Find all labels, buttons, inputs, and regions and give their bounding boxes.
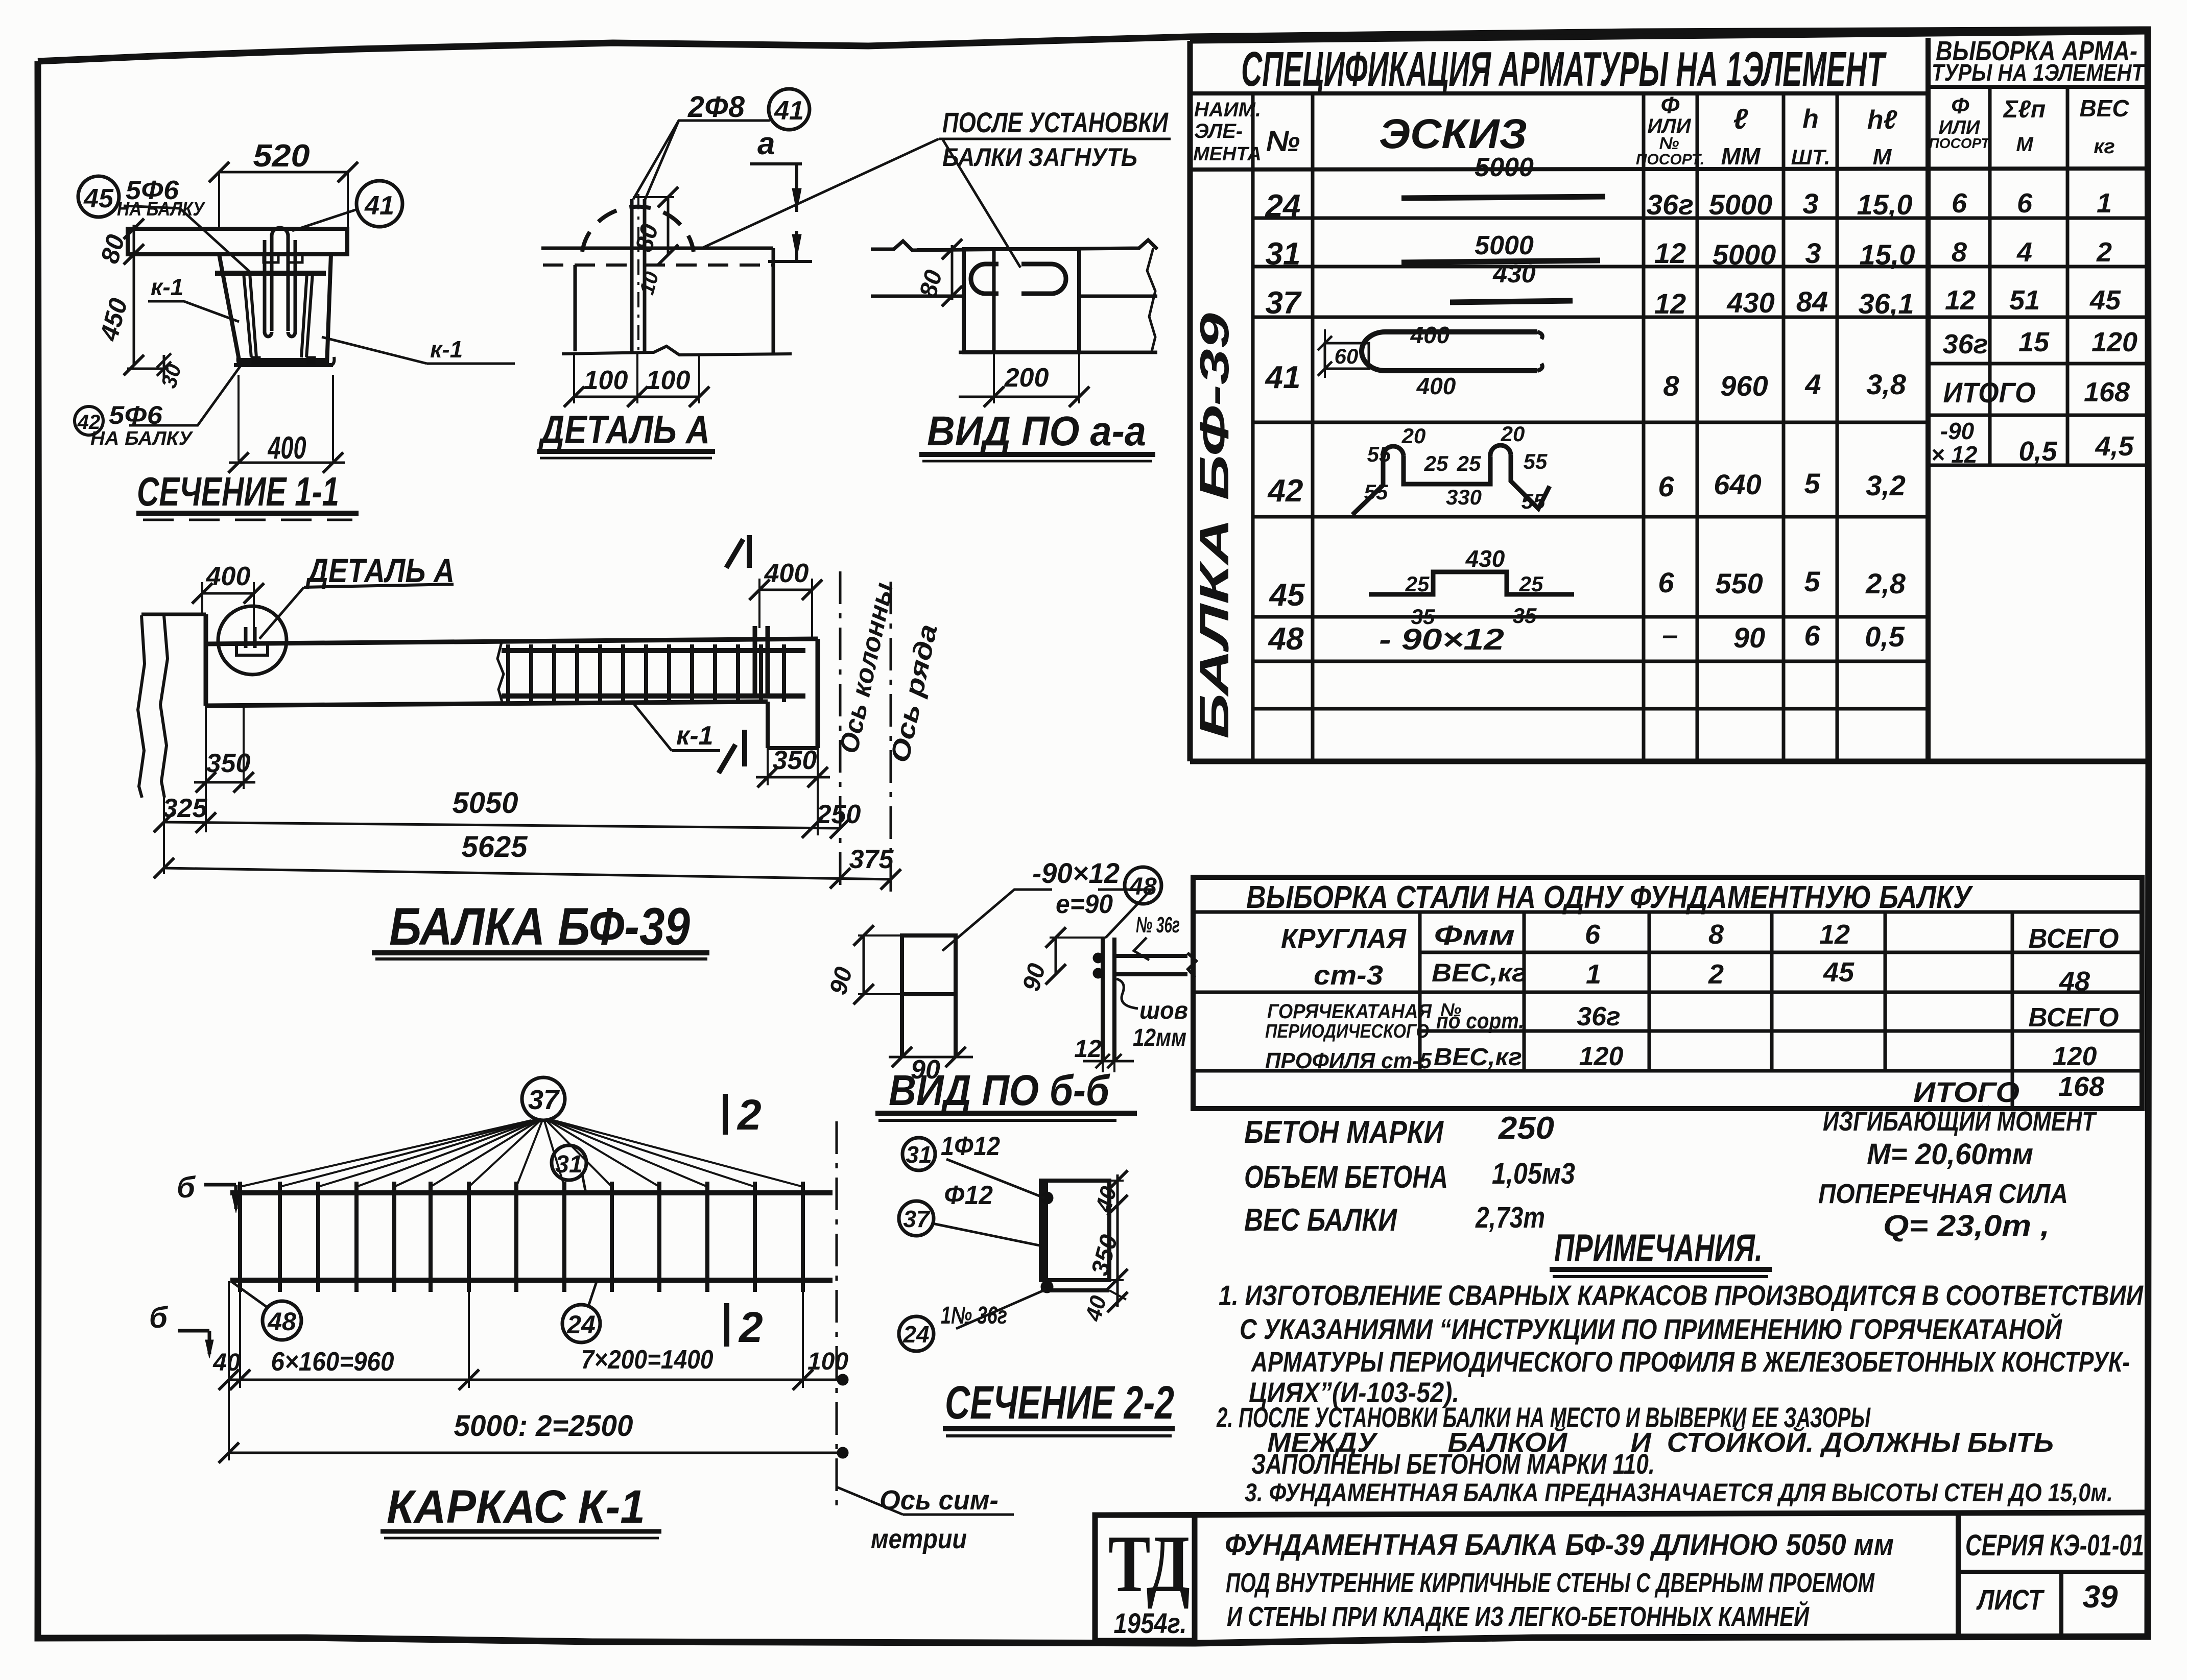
svg-text:ПЕРИОДИЧЕСКОГО: ПЕРИОДИЧЕСКОГО (1265, 1021, 1429, 1042)
svg-text:6: 6 (1658, 470, 1674, 502)
svg-text:45: 45 (1269, 578, 1305, 613)
svg-text:ℓ: ℓ (1733, 103, 1749, 135)
svg-text:к-1: к-1 (430, 336, 463, 363)
svg-text:ВСЕГО: ВСЕГО (2029, 923, 2119, 954)
svg-text:42: 42 (1267, 473, 1303, 509)
svg-text:36г: 36г (1577, 1002, 1621, 1031)
svg-text:Σℓп: Σℓп (2003, 96, 2046, 123)
svg-text:КРУГЛАЯ: КРУГЛАЯ (1281, 923, 1407, 954)
svg-text:ВИД ПО а-а: ВИД ПО а-а (927, 408, 1146, 454)
svg-text:б: б (177, 1171, 196, 1204)
svg-text:МЕНТА: МЕНТА (1193, 143, 1262, 165)
svg-text:- 90×12: - 90×12 (1379, 623, 1504, 656)
svg-text:ЗАПОЛНЕНЫ БЕТОНОМ МАРКИ 110.: ЗАПОЛНЕНЫ БЕТОНОМ МАРКИ 110. (1251, 1448, 1655, 1480)
svg-text:2: 2 (736, 1091, 762, 1139)
svg-text:168: 168 (2084, 377, 2130, 407)
svg-text:№ 36г: № 36г (1136, 913, 1180, 938)
svg-text:5050: 5050 (452, 786, 518, 820)
svg-text:12: 12 (1945, 285, 1976, 316)
svg-text:45: 45 (2089, 285, 2121, 316)
svg-text:55: 55 (1364, 480, 1388, 504)
svg-text:40: 40 (212, 1349, 241, 1376)
svg-text:кг: кг (2094, 135, 2115, 158)
svg-text:12: 12 (1654, 237, 1686, 269)
svg-text:1. ИЗГОТОВЛЕНИЕ СВАРНЫХ КАРКАС: 1. ИЗГОТОВЛЕНИЕ СВАРНЫХ КАРКАСОВ ПРОИЗВО… (1219, 1279, 2144, 1311)
svg-text:12: 12 (1819, 919, 1850, 950)
svg-text:Φ: Φ (1951, 93, 1969, 118)
svg-text:31: 31 (555, 1151, 582, 1178)
svg-text:ГОРЯЧЕКАТАНАЯ: ГОРЯЧЕКАТАНАЯ (1267, 1000, 1432, 1023)
svg-text:250: 250 (1498, 1111, 1554, 1146)
svg-text:2Φ8: 2Φ8 (687, 90, 745, 124)
svg-text:ИЗГИБАЮЩИЙ МОМЕНТ: ИЗГИБАЮЩИЙ МОМЕНТ (1823, 1105, 2097, 1137)
svg-text:3: 3 (1805, 237, 1821, 269)
svg-text:3,8: 3,8 (1866, 368, 1907, 400)
svg-text:430: 430 (1492, 259, 1536, 288)
svg-text:ВЕС,кг: ВЕС,кг (1432, 958, 1527, 987)
svg-text:48: 48 (267, 1307, 296, 1336)
svg-text:НА БАЛКУ: НА БАЛКУ (117, 199, 206, 220)
svg-text:37: 37 (903, 1206, 931, 1232)
svg-text:И СТЕНЫ ПРИ КЛАДКЕ ИЗ ЛЕГКО: И СТЕНЫ ПРИ КЛАДКЕ ИЗ ЛЕГКО-БЕТОННЫХ КАМ… (1227, 1600, 1810, 1632)
svg-text:0,5: 0,5 (1865, 620, 1905, 653)
svg-text:36г: 36г (1943, 329, 1988, 359)
svg-text:960: 960 (1720, 370, 1768, 402)
svg-text:е=90: е=90 (1056, 890, 1113, 919)
svg-text:6: 6 (1804, 619, 1820, 652)
svg-text:24: 24 (902, 1321, 929, 1348)
svg-text:ПОСОРТ.: ПОСОРТ. (1636, 151, 1704, 168)
svg-text:35: 35 (1513, 604, 1537, 628)
svg-text:7×200=1400: 7×200=1400 (581, 1345, 714, 1375)
svg-text:37: 37 (1266, 285, 1302, 321)
svg-text:ТД: ТД (1108, 1518, 1190, 1609)
svg-text:БАЛКА БФ-39: БАЛКА БФ-39 (389, 897, 690, 956)
svg-text:СЕРИЯ КЭ-01-01: СЕРИЯ КЭ-01-01 (1965, 1529, 2144, 1562)
svg-text:М: М (1873, 145, 1892, 170)
svg-text:6: 6 (1585, 919, 1601, 950)
svg-text:4: 4 (2016, 237, 2032, 268)
svg-text:ДЕТАЛЬ А: ДЕТАЛЬ А (538, 407, 710, 452)
svg-text:НА БАЛКУ: НА БАЛКУ (90, 428, 194, 449)
svg-text:5000: 5000 (1709, 188, 1773, 221)
svg-text:41: 41 (1265, 360, 1301, 395)
svg-text:37: 37 (528, 1085, 560, 1115)
svg-text:41: 41 (774, 96, 804, 126)
svg-text:36г: 36г (1647, 188, 1694, 221)
svg-text:шов: шов (1139, 997, 1188, 1024)
svg-text:120: 120 (2053, 1042, 2097, 1071)
svg-text:90: 90 (1733, 621, 1765, 654)
svg-text:№: № (1659, 134, 1679, 153)
svg-text:6×160=960: 6×160=960 (271, 1347, 394, 1377)
svg-text:120: 120 (2091, 327, 2137, 357)
svg-text:метрии: метрии (871, 1524, 967, 1554)
svg-text:2: 2 (738, 1303, 763, 1351)
svg-text:× 12: × 12 (1931, 441, 1978, 468)
svg-text:5000: 5000 (1475, 153, 1534, 182)
svg-text:АРМАТУРЫ ПЕРИОДИЧЕСКОГО ПРОФИ: АРМАТУРЫ ПЕРИОДИЧЕСКОГО ПРОФИЛЯ В ЖЕЛЕЗО… (1250, 1346, 2130, 1378)
svg-text:5000: 2=2500: 5000: 2=2500 (454, 1409, 633, 1443)
svg-text:5000: 5000 (1713, 238, 1776, 271)
svg-text:375: 375 (849, 845, 894, 874)
svg-text:120: 120 (1579, 1042, 1624, 1071)
svg-text:б: б (149, 1301, 169, 1334)
svg-text:ЭСКИЗ: ЭСКИЗ (1379, 111, 1527, 157)
svg-text:БЕТОН МАРКИ: БЕТОН МАРКИ (1244, 1115, 1444, 1150)
svg-text:ФУНДАМЕНТНАЯ БАЛКА БФ-39 ДЛИ: ФУНДАМЕНТНАЯ БАЛКА БФ-39 ДЛИНОЮ 5050 мм (1225, 1528, 1894, 1562)
svg-text:41: 41 (364, 191, 394, 221)
svg-text:КАРКАС К-1: КАРКАС К-1 (387, 1481, 645, 1533)
svg-text:БАЛКИ ЗАГНУТЬ: БАЛКИ ЗАГНУТЬ (942, 143, 1137, 172)
svg-text:4: 4 (1804, 368, 1821, 400)
svg-text:100: 100 (646, 366, 691, 395)
svg-text:325: 325 (163, 794, 208, 823)
svg-text:СПЕЦИФИКАЦИЯ АРМАТУРЫ НА 1ЭЛЕМ: СПЕЦИФИКАЦИЯ АРМАТУРЫ НА 1ЭЛЕМЕНТ (1241, 42, 1887, 97)
svg-text:М: М (2016, 133, 2034, 156)
svg-text:31: 31 (1266, 236, 1301, 272)
svg-text:ОБЪЕМ БЕТОНА: ОБЪЕМ БЕТОНА (1244, 1160, 1448, 1195)
svg-text:ММ: ММ (1721, 143, 1761, 170)
svg-text:100: 100 (807, 1348, 848, 1375)
svg-text:к-1: к-1 (151, 274, 183, 300)
svg-text:М= 20,60тм: М= 20,60тм (1867, 1138, 2033, 1171)
svg-text:8: 8 (1708, 919, 1724, 950)
svg-text:6: 6 (1952, 188, 1967, 219)
svg-text:4,5: 4,5 (2095, 431, 2134, 462)
svg-text:3. ФУНДАМЕНТНАЯ БАЛКА ПРЕДНА: 3. ФУНДАМЕНТНАЯ БАЛКА ПРЕДНАЗНАЧАЕТСЯ ДЛ… (1245, 1478, 2113, 1507)
svg-text:31: 31 (906, 1141, 932, 1168)
svg-text:1954г.: 1954г. (1114, 1607, 1187, 1639)
svg-text:20: 20 (1401, 424, 1426, 448)
svg-text:6: 6 (2017, 188, 2033, 219)
svg-text:12: 12 (1654, 287, 1686, 320)
svg-text:3,2: 3,2 (1866, 469, 1906, 501)
svg-text:hℓ: hℓ (1867, 105, 1898, 135)
svg-text:25: 25 (1519, 572, 1543, 596)
svg-text:12: 12 (1074, 1036, 1102, 1063)
svg-text:550: 550 (1715, 567, 1763, 599)
svg-text:25: 25 (1457, 451, 1481, 475)
svg-text:12мм: 12мм (1133, 1024, 1186, 1051)
svg-text:1: 1 (2097, 188, 2112, 219)
svg-text:5000: 5000 (1475, 231, 1534, 260)
svg-text:15,0: 15,0 (1860, 238, 1915, 271)
svg-text:Q= 23,0т ,: Q= 23,0т , (1883, 1209, 2050, 1242)
svg-text:ВЕС,кг: ВЕС,кг (1434, 1044, 1522, 1071)
svg-text:2: 2 (2096, 237, 2112, 268)
svg-text:№: № (1266, 125, 1300, 158)
svg-text:8: 8 (1952, 237, 1967, 268)
svg-text:ПОПЕРЕЧНАЯ СИЛА: ПОПЕРЕЧНАЯ СИЛА (1818, 1179, 2068, 1209)
svg-text:400: 400 (267, 430, 306, 466)
svg-text:2: 2 (1708, 959, 1724, 990)
svg-text:45: 45 (83, 184, 114, 213)
svg-text:350: 350 (206, 749, 251, 778)
svg-text:25: 25 (1424, 451, 1448, 475)
svg-text:5: 5 (1804, 565, 1820, 597)
svg-text:330: 330 (1446, 485, 1482, 509)
svg-text:СЕЧЕНИЕ 2-2: СЕЧЕНИЕ 2-2 (945, 1377, 1174, 1429)
svg-text:39: 39 (2083, 1579, 2118, 1615)
svg-text:ЭЛЕ-: ЭЛЕ- (1194, 120, 1243, 142)
svg-text:15: 15 (2018, 327, 2050, 357)
svg-text:БАЛКА БФ-39: БАЛКА БФ-39 (1192, 313, 1237, 739)
svg-text:45: 45 (1823, 957, 1855, 988)
svg-text:25: 25 (1405, 572, 1430, 596)
svg-text:48: 48 (1129, 873, 1157, 900)
svg-text:ПРОФИЛЯ ст-5: ПРОФИЛЯ ст-5 (1265, 1048, 1432, 1073)
svg-text:5: 5 (1804, 467, 1820, 499)
svg-text:по сорт.: по сорт. (1436, 1009, 1524, 1034)
svg-text:Φ12: Φ12 (944, 1181, 993, 1210)
svg-text:С УКАЗАНИЯМИ “ИНСТРУКЦИИ ПО П: С УКАЗАНИЯМИ “ИНСТРУКЦИИ ПО ПРИМЕНЕНИЮ Г… (1240, 1313, 2062, 1345)
svg-text:5625: 5625 (461, 830, 528, 863)
svg-text:400: 400 (1416, 373, 1456, 399)
svg-text:15,0: 15,0 (1857, 188, 1913, 221)
svg-text:ИТОГО: ИТОГО (1913, 1076, 2019, 1108)
svg-text:СЕЧЕНИЕ 1-1: СЕЧЕНИЕ 1-1 (137, 469, 339, 514)
svg-text:48: 48 (1268, 621, 1304, 657)
svg-text:200: 200 (1004, 363, 1049, 393)
svg-text:-90: -90 (1940, 418, 1975, 444)
svg-text:48: 48 (2059, 966, 2090, 997)
svg-text:430: 430 (1465, 545, 1505, 572)
svg-text:ЛИСТ: ЛИСТ (1976, 1583, 2045, 1616)
svg-text:55: 55 (1524, 449, 1548, 473)
svg-text:1,05м3: 1,05м3 (1492, 1157, 1575, 1190)
svg-text:400: 400 (764, 559, 809, 588)
svg-text:2,73т: 2,73т (1475, 1201, 1545, 1234)
svg-text:НАИМ.: НАИМ. (1194, 99, 1261, 121)
svg-text:20: 20 (1501, 422, 1525, 446)
svg-text:100: 100 (584, 366, 628, 395)
svg-text:400: 400 (206, 562, 251, 591)
svg-text:0,5: 0,5 (2018, 436, 2057, 467)
svg-text:ТУРЫ НА 1ЭЛЕМЕНТ: ТУРЫ НА 1ЭЛЕМЕНТ (1932, 59, 2146, 86)
svg-text:430: 430 (1726, 286, 1774, 319)
svg-text:640: 640 (1714, 468, 1761, 500)
svg-text:h: h (1802, 104, 1819, 134)
svg-text:250: 250 (816, 800, 861, 829)
svg-text:к-1: к-1 (676, 721, 714, 751)
svg-text:Φмм: Φмм (1434, 920, 1515, 951)
svg-text:1№ 36г: 1№ 36г (941, 1302, 1007, 1329)
svg-text:ВЫБОРКА СТАЛИ НА ОДНУ ФУНД: ВЫБОРКА СТАЛИ НА ОДНУ ФУНДАМЕНТНУЮ БАЛКУ (1246, 880, 1973, 915)
svg-text:–: – (1662, 618, 1678, 651)
svg-text:3: 3 (1802, 187, 1818, 220)
svg-text:-90×12: -90×12 (1032, 857, 1120, 889)
svg-text:400: 400 (1410, 322, 1450, 348)
svg-text:1: 1 (1586, 959, 1601, 990)
svg-text:ПОСОРТ: ПОСОРТ (1929, 135, 1991, 151)
svg-text:ИТОГО: ИТОГО (1943, 376, 2036, 409)
svg-text:ПОСЛЕ УСТАНОВКИ: ПОСЛЕ УСТАНОВКИ (942, 106, 1169, 138)
svg-text:24: 24 (1265, 188, 1301, 224)
svg-text:ВИД ПО б-б: ВИД ПО б-б (889, 1066, 1110, 1114)
svg-text:1Φ12: 1Φ12 (941, 1132, 1000, 1161)
svg-text:ПРИМЕЧАНИЯ.: ПРИМЕЧАНИЯ. (1554, 1227, 1763, 1270)
svg-text:ВСЕГО: ВСЕГО (2029, 1003, 2119, 1033)
svg-text:ВЕС: ВЕС (2079, 95, 2129, 122)
svg-text:350: 350 (773, 746, 817, 775)
svg-text:84: 84 (1796, 285, 1828, 318)
svg-text:8: 8 (1663, 370, 1679, 402)
svg-text:51: 51 (2009, 285, 2040, 316)
svg-text:520: 520 (253, 138, 310, 174)
svg-text:60: 60 (1335, 344, 1359, 368)
svg-text:2,8: 2,8 (1865, 567, 1906, 599)
svg-text:36,1: 36,1 (1859, 287, 1914, 320)
svg-text:6: 6 (1658, 566, 1674, 598)
svg-text:ШТ.: ШТ. (1791, 145, 1831, 169)
svg-text:Ось сим-: Ось сим- (879, 1485, 999, 1516)
svg-text:ст-3: ст-3 (1314, 960, 1383, 991)
svg-text:55: 55 (1367, 442, 1391, 466)
svg-text:168: 168 (2058, 1071, 2104, 1102)
svg-text:24: 24 (566, 1310, 596, 1339)
svg-text:ВЕС БАЛКИ: ВЕС БАЛКИ (1244, 1203, 1397, 1238)
svg-text:55: 55 (1522, 489, 1546, 513)
svg-text:а: а (757, 126, 775, 161)
svg-text:ПОД ВНУТРЕННИЕ КИРПИЧНЫЕ СТ: ПОД ВНУТРЕННИЕ КИРПИЧНЫЕ СТЕНЫ С ДВЕРНЫМ… (1226, 1568, 1875, 1598)
